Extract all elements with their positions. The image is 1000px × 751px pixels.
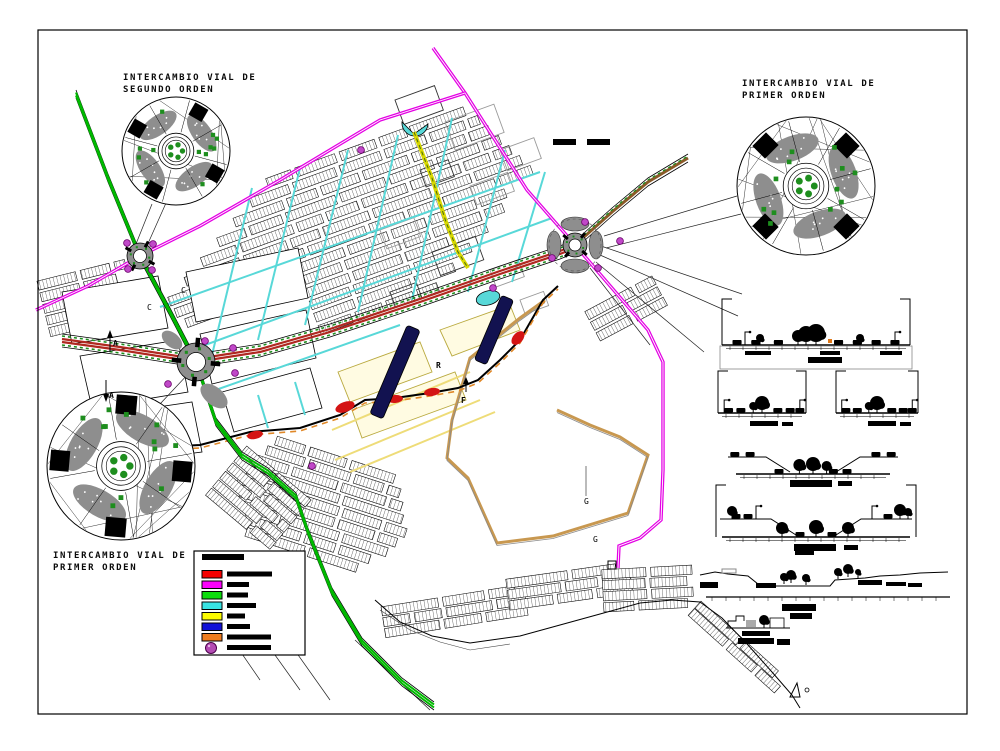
svg-text:F: F: [461, 396, 466, 405]
svg-text:A: A: [113, 339, 118, 348]
legend: [194, 551, 305, 655]
svg-text:C: C: [147, 303, 152, 312]
svg-text:C: C: [181, 286, 186, 295]
svg-text:G: G: [584, 497, 589, 506]
svg-text:1: 1: [115, 393, 125, 412]
urban-plan-map: AA1CCFRGG INTERCAMBIO VIAL DE SEGUNDO OR…: [0, 0, 1000, 751]
scale-bar: [553, 139, 610, 145]
callout-second-order-line2: SEGUNDO ORDEN: [123, 85, 214, 95]
callout-first-order-left-line2: PRIMER ORDEN: [53, 563, 137, 573]
callout-first-order-right-line1: INTERCAMBIO VIAL DE: [742, 79, 875, 89]
svg-text:R: R: [436, 361, 441, 370]
callout-first-order-left-line1: INTERCAMBIO VIAL DE: [53, 551, 186, 561]
cad-drawing-sheet: AA1CCFRGG INTERCAMBIO VIAL DE SEGUNDO OR…: [0, 0, 1000, 751]
svg-text:A: A: [109, 391, 114, 400]
callout-first-order-right-line2: PRIMER ORDEN: [742, 91, 826, 101]
street-cross-sections: [700, 299, 950, 645]
callout-second-order-line1: INTERCAMBIO VIAL DE: [123, 73, 256, 83]
svg-text:G: G: [593, 535, 598, 544]
